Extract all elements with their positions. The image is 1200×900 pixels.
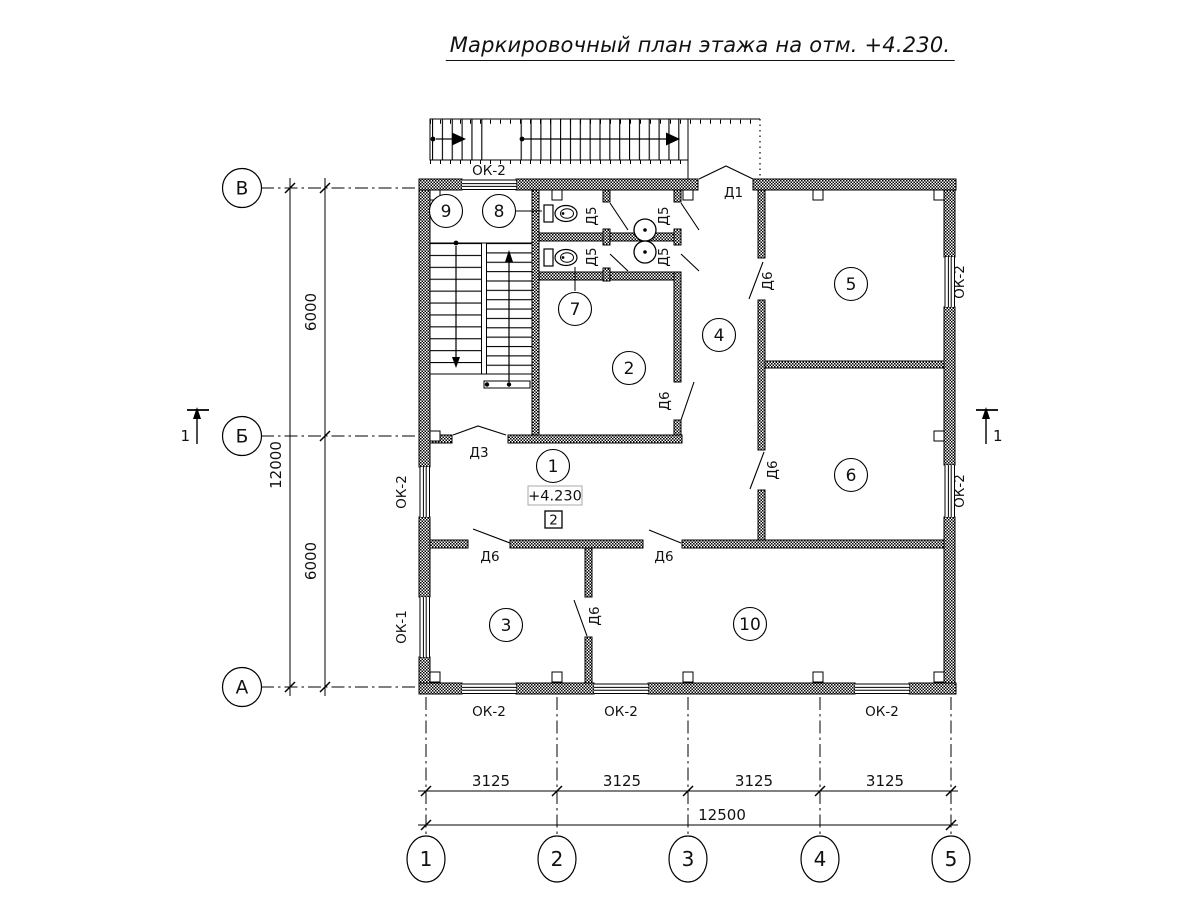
dim-left-6000-bottom: 6000	[302, 542, 320, 580]
room-bubble-8: 8	[483, 195, 516, 228]
door-d1-leaf	[699, 166, 753, 179]
section-number: 1	[993, 427, 1003, 445]
axis-number: 4	[814, 847, 827, 871]
door-d3-leaf	[453, 426, 506, 435]
window-bottom-ok2-2	[594, 684, 648, 694]
section-number: 1	[180, 427, 190, 445]
axis-bubble-1: 1	[407, 836, 445, 882]
room-number: 6	[846, 466, 857, 486]
room-bubble-2: 2	[613, 352, 646, 385]
room-number: 1	[548, 457, 559, 477]
window-left-ok2	[420, 467, 430, 517]
dim-bottom-3125: 3125	[735, 772, 773, 790]
door-tag-d6: Д6	[760, 271, 776, 290]
room-number: 8	[494, 202, 505, 222]
section-arrow	[982, 407, 990, 419]
dim-left-6000-top: 6000	[302, 293, 320, 331]
room-bubble-6: 6	[835, 459, 868, 492]
room-number: 3	[501, 616, 512, 636]
room-number: 2	[624, 359, 635, 379]
door-tag-d5: Д5	[584, 247, 600, 266]
elevation-mark: +4.230	[528, 486, 582, 505]
axis-bubble-v: В	[223, 169, 262, 208]
room-bubble-7: 7	[559, 293, 592, 326]
axis-letter: В	[236, 179, 249, 200]
window-tag-ok2: ОК-2	[472, 704, 506, 720]
axis-bubble-2: 2	[538, 836, 576, 882]
window-tag-ok2: ОК-2	[604, 704, 638, 720]
room-bubble-9: 9	[430, 195, 463, 228]
dim-bottom-3125: 3125	[603, 772, 641, 790]
window-bottom-ok2-3	[855, 684, 909, 694]
axis-number: 1	[420, 847, 433, 871]
dim-bottom-3125: 3125	[472, 772, 510, 790]
sink-icon	[634, 219, 656, 241]
axis-bubble-b: Б	[223, 417, 262, 456]
door-tag-d5: Д5	[656, 206, 672, 225]
window-tag-ok2: ОК-2	[952, 474, 968, 508]
dim-bottom-total-12500: 12500	[698, 806, 746, 824]
window-left-ok1	[420, 597, 430, 657]
door-d6-leaf	[750, 452, 764, 489]
window-bottom-ok2-1	[462, 684, 516, 694]
room-bubble-5: 5	[835, 268, 868, 301]
door-tag-d6: Д6	[480, 549, 499, 565]
floor-type-value: 2	[549, 513, 558, 529]
room-number: 9	[441, 202, 452, 222]
window-top-ok2	[462, 180, 516, 190]
floor-type-mark: 2	[545, 511, 562, 529]
window-tag-ok2: ОК-2	[952, 265, 968, 299]
window-tag-ok2: ОК-2	[865, 704, 899, 720]
room-bubble-1: 1	[537, 450, 570, 483]
elevation-value: +4.230	[528, 489, 582, 505]
axis-bubble-5: 5	[932, 836, 970, 882]
room-number: 10	[739, 615, 761, 635]
room-number: 7	[570, 300, 581, 320]
axis-bubble-3: 3	[669, 836, 707, 882]
axis-number: 5	[945, 847, 958, 871]
room-bubble-4: 4	[703, 319, 736, 352]
window-tag-ok2: ОК-2	[472, 163, 506, 179]
toilet-icon	[544, 205, 577, 222]
door-tag-d6: Д6	[765, 460, 781, 479]
door-d6-leaf	[681, 382, 694, 420]
door-d5-leaf	[610, 203, 628, 230]
room-bubble-10: 10	[734, 608, 767, 641]
floor-plan-drawing: 1 2 3 4 5 6 7 8	[0, 0, 1200, 900]
axis-bubble-4: 4	[801, 836, 839, 882]
room-bubble-3: 3	[490, 609, 523, 642]
door-tag-d3: Д3	[469, 445, 488, 461]
axis-bubble-a: А	[223, 668, 262, 707]
dim-bottom-3125: 3125	[866, 772, 904, 790]
door-d5-leaf	[681, 254, 699, 271]
door-tag-d6: Д6	[587, 606, 603, 625]
section-arrow	[193, 407, 201, 419]
axis-number: 2	[551, 847, 564, 871]
axis-letter: А	[236, 678, 249, 699]
door-d6-leaf	[473, 529, 510, 543]
door-tag-d6: Д6	[654, 549, 673, 565]
axis-number: 3	[682, 847, 695, 871]
door-d5-leaf	[681, 203, 699, 230]
internal-stair	[430, 241, 532, 388]
door-d5-leaf	[610, 254, 628, 271]
door-d6-leaf	[574, 600, 587, 636]
axis-letter: Б	[236, 427, 249, 448]
section-mark-left: 1	[180, 407, 209, 445]
door-tag-d5: Д5	[656, 247, 672, 266]
door-tag-d5: Д5	[584, 206, 600, 225]
door-tag-d6: Д6	[657, 391, 673, 410]
door-d6-leaf	[649, 530, 681, 543]
dim-left-total-12000: 12000	[267, 441, 285, 489]
door-tag-d1: Д1	[724, 185, 743, 201]
toilet-icon	[544, 249, 577, 266]
window-tag-ok1: ОК-1	[394, 610, 410, 644]
sink-icon	[634, 241, 656, 263]
section-mark-right: 1	[976, 407, 1003, 445]
room-number: 4	[714, 326, 725, 346]
room-number: 5	[846, 275, 857, 295]
window-tag-ok2: ОК-2	[394, 475, 410, 509]
